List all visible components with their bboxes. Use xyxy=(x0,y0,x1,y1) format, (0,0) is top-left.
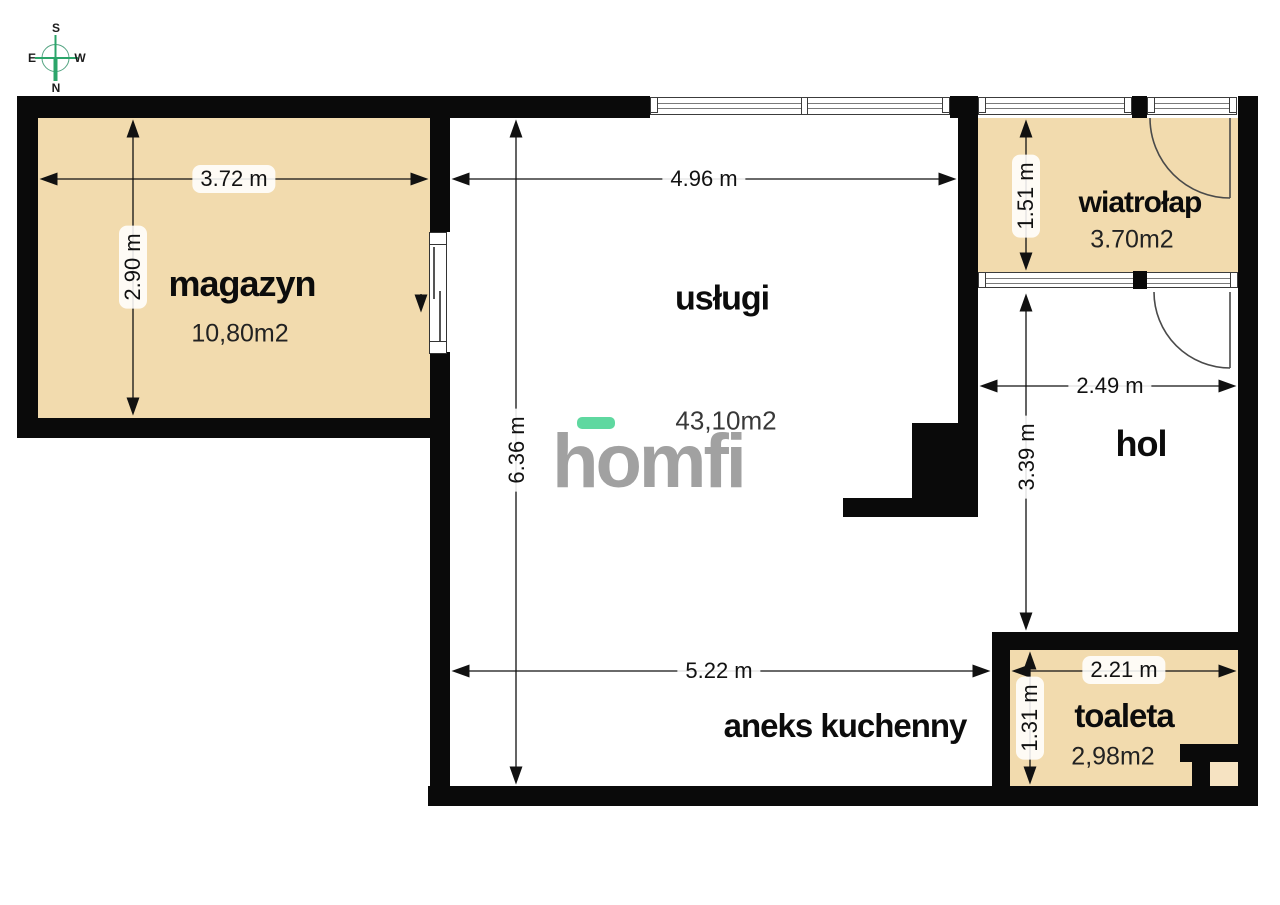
wiatrolap-area: 3.70m2 xyxy=(1090,226,1173,255)
magazyn-sliding-door xyxy=(429,232,447,354)
magazyn-bottom-wall xyxy=(17,418,450,438)
toaleta-label: toaleta xyxy=(1074,697,1173,735)
toaleta-left-wall xyxy=(992,632,1010,806)
floor-plan: homfi xyxy=(0,0,1280,905)
uslugi-label: usługi xyxy=(675,280,769,319)
dim-magazyn-depth: 2.90 m xyxy=(119,225,147,308)
compass-north-label: N xyxy=(52,81,61,95)
compass-icon xyxy=(35,35,78,81)
toaleta-duct-wall-h xyxy=(1180,744,1240,762)
toaleta-top-wall xyxy=(992,632,1258,650)
hol-label: hol xyxy=(1116,423,1167,465)
top-wall-post-b xyxy=(1132,96,1147,118)
dim-toaleta-depth: 1.31 m xyxy=(1016,676,1044,759)
bottom-wall xyxy=(428,786,1258,806)
uslugi-duct-stub xyxy=(843,498,978,517)
west-wall-lower xyxy=(430,352,450,806)
toaleta-duct-wall-v xyxy=(1192,744,1210,788)
magazyn-label: magazyn xyxy=(168,263,315,305)
dim-magazyn-width: 3.72 m xyxy=(192,165,275,193)
dim-aneks-width: 5.22 m xyxy=(677,657,760,685)
dim-hol-depth: 3.39 m xyxy=(1013,415,1041,498)
sliding-panel-1 xyxy=(433,247,435,299)
hol-door xyxy=(1154,292,1230,368)
window-mullion xyxy=(801,97,808,115)
top-wall xyxy=(17,96,650,118)
magazyn-area: 10,80m2 xyxy=(191,320,288,349)
wiatrolap-partition-glazing xyxy=(978,272,1238,288)
wiatrolap-label: wiatrołap xyxy=(1079,186,1202,220)
partition-mullion xyxy=(1133,271,1147,289)
compass-west-label: W xyxy=(74,51,85,65)
storefront-window-1 xyxy=(650,97,950,115)
dim-toaleta-width: 2.21 m xyxy=(1082,656,1165,684)
dim-wiatrolap-depth: 1.51 m xyxy=(1012,154,1040,237)
toaleta-area: 2,98m2 xyxy=(1071,743,1154,772)
compass-south-label: S xyxy=(52,21,60,35)
dim-uslugi-width: 4.96 m xyxy=(662,165,745,193)
aneks-kuchenny-label: aneks kuchenny xyxy=(724,707,967,745)
storefront-window-2 xyxy=(978,97,1132,115)
left-wall xyxy=(17,96,38,438)
toaleta-duct-pocket xyxy=(1210,762,1238,786)
dim-hol-width: 2.49 m xyxy=(1068,372,1151,400)
door-jamb-top xyxy=(429,232,447,245)
right-wall xyxy=(1238,96,1258,806)
entrance-glazing xyxy=(1147,97,1237,115)
compass-east-label: E xyxy=(28,51,36,65)
door-jamb-bottom xyxy=(429,341,447,354)
uslugi-area: 43,10m2 xyxy=(675,406,776,437)
top-wall-post-a xyxy=(950,96,978,118)
west-wall-upper xyxy=(430,96,450,232)
dim-uslugi-depth: 6.36 m xyxy=(503,408,531,491)
sliding-panel-2 xyxy=(439,291,441,341)
